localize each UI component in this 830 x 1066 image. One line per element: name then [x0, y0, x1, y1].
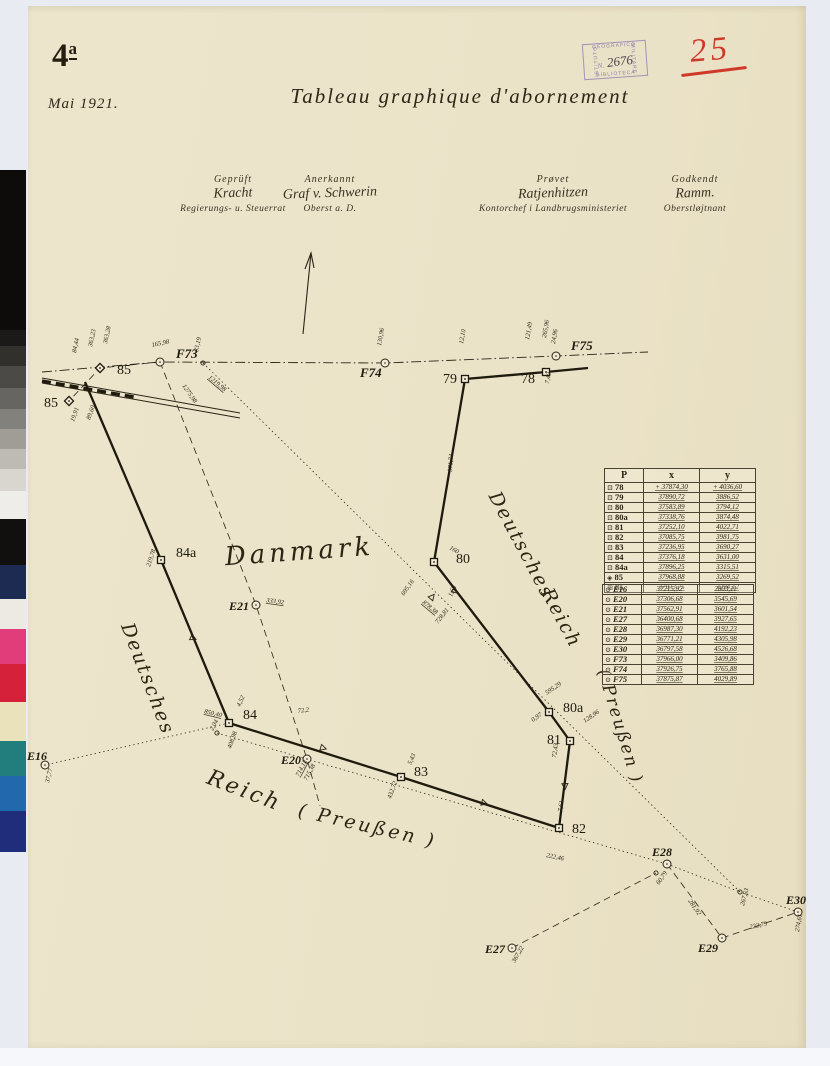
- measurement-label: 1219,98: [207, 374, 228, 393]
- x-value-cell: 37306,68: [642, 595, 698, 605]
- y-value-cell: + 4036,60: [700, 483, 756, 493]
- survey-point-dot: [44, 764, 46, 766]
- x-value-cell: 37085,75: [644, 533, 700, 543]
- marker-glyph: ⊙: [605, 626, 611, 634]
- measurement-label: 1275,98: [180, 383, 198, 405]
- survey-point-dot: [228, 722, 230, 724]
- table-row: ⊙ F7437926,753765,88: [603, 665, 754, 675]
- table-row: ⊡ 7937890,723886,52: [605, 493, 756, 503]
- measurement-label: 72,2: [297, 706, 310, 715]
- measurement-label: 850,40: [204, 708, 224, 719]
- marker-glyph: ⊡: [607, 484, 613, 492]
- scanned-survey-sheet: 4a Mai 1921. Tableau graphique d'abornem…: [0, 0, 830, 1066]
- measurement-label: 7,61: [557, 800, 566, 812]
- x-value-cell: 37968,88: [644, 573, 700, 583]
- y-value-cell: 3601,54: [698, 605, 754, 615]
- point-id-cell: ⊡ 80a: [605, 513, 644, 523]
- region-label: Reich: [202, 765, 285, 817]
- marker-glyph: ⊡: [607, 494, 613, 502]
- measurement-label: 19,91: [69, 407, 81, 423]
- marker-glyph: ⊙: [605, 596, 611, 604]
- measurement-label: 333,92: [265, 597, 285, 607]
- measurement-label: 222,79: [749, 920, 769, 931]
- measurement-label: 363,28: [102, 325, 113, 346]
- survey-point-dot: [569, 740, 571, 742]
- measurement-label: 12,10: [458, 328, 468, 344]
- point-id-cell: ⊙ F75: [603, 675, 642, 685]
- survey-point-dot: [433, 561, 435, 563]
- point-label-E16: E16: [26, 749, 47, 763]
- survey-line-dotted: [667, 864, 740, 892]
- marker-glyph: ⊙: [605, 656, 611, 664]
- y-value-cell: 3874,48: [700, 513, 756, 523]
- coordinate-table-reference: ⊙ E1637215,922803,11⊙ E2037306,683545,69…: [602, 584, 754, 685]
- survey-point-dot: [68, 400, 70, 402]
- survey-point-dot: [558, 827, 560, 829]
- x-value-cell: 37926,75: [642, 665, 698, 675]
- point-id-cell: ⊙ F73: [603, 655, 642, 665]
- railway-line: [42, 378, 240, 413]
- survey-point-dot: [721, 937, 723, 939]
- y-value-cell: 3690,27: [700, 543, 756, 553]
- marker-glyph: ⊡: [607, 504, 613, 512]
- point-id-cell: ⊙ E20: [603, 595, 642, 605]
- x-value-cell: 37583,89: [644, 503, 700, 513]
- point-label-85-lower: 85: [44, 396, 58, 411]
- x-value-cell: 37236,95: [644, 543, 700, 553]
- table-row: ⊡ 8137252,104022,71: [605, 523, 756, 533]
- x-value-cell: 36400,68: [642, 615, 698, 625]
- marker-glyph: ⊙: [605, 586, 611, 594]
- y-value-cell: 4192,23: [698, 625, 754, 635]
- survey-point-dot: [99, 367, 101, 369]
- measurement-label: 33,19: [193, 336, 203, 353]
- y-value-cell: 4305,98: [698, 635, 754, 645]
- point-label-82: 82: [572, 822, 586, 837]
- table-header-cell: P: [605, 469, 644, 483]
- y-value-cell: 3409,86: [698, 655, 754, 665]
- measurement-label: 84,44: [71, 337, 81, 353]
- x-value-cell: + 37874,30: [644, 483, 700, 493]
- marker-glyph: ⊡: [607, 564, 613, 572]
- survey-point-dot: [160, 559, 162, 561]
- y-value-cell: 3269,52: [700, 573, 756, 583]
- y-value-cell: 3886,52: [700, 493, 756, 503]
- survey-point-dot: [159, 361, 161, 363]
- table-row: ⊙ E2037306,683545,69: [603, 595, 754, 605]
- point-id-cell: ⊙ E30: [603, 645, 642, 655]
- x-value-cell: 36797,58: [642, 645, 698, 655]
- point-id-cell: ⊡ 84: [605, 553, 644, 563]
- measurement-label: 265,96: [541, 319, 551, 339]
- measurement-label: 4,52: [235, 694, 246, 708]
- x-value-cell: 37896,25: [644, 563, 700, 573]
- measurement-label: 274,61: [794, 914, 804, 933]
- survey-line-dotted: [45, 723, 229, 765]
- point-id-cell: ⊙ E28: [603, 625, 642, 635]
- x-value-cell: 37376,18: [644, 553, 700, 563]
- region-label: Deutsches: [483, 487, 558, 602]
- region-label: Danmark: [223, 532, 375, 572]
- marker-glyph: ⊡: [607, 534, 613, 542]
- table-row: ⊡ 8437376,183631,00: [605, 553, 756, 563]
- survey-point-dot: [384, 362, 386, 364]
- y-value-cell: 3631,00: [700, 553, 756, 563]
- region-label: ( Preußen ): [296, 800, 439, 853]
- table-row: ⊙ E2936771,214305,98: [603, 635, 754, 645]
- survey-point-dot: [464, 378, 466, 380]
- point-label-E21: E21: [228, 599, 249, 613]
- table-header-row: Pxy: [605, 469, 756, 483]
- point-id-cell: ⊡ 79: [605, 493, 644, 503]
- y-value-cell: 4029,89: [698, 675, 754, 685]
- point-id-cell: ⊙ E29: [603, 635, 642, 645]
- table-row: ⊙ E2137562,913601,54: [603, 605, 754, 615]
- measurement-label: 2,04: [209, 718, 221, 732]
- point-label-80: 80: [456, 552, 470, 567]
- region-label: Deutsches: [116, 619, 179, 738]
- table-row: ⊡ 8037583,893794,12: [605, 503, 756, 513]
- x-value-cell: 37966,00: [642, 655, 698, 665]
- survey-line-dashed: [512, 873, 656, 948]
- coordinate-table-boundary: Pxy⊡ 78+ 37874,30+ 4036,60⊡ 7937890,7238…: [604, 468, 756, 593]
- measurement-label: 60,79: [655, 870, 670, 887]
- point-label-79: 79: [443, 372, 457, 387]
- y-value-cell: 3315,51: [700, 563, 756, 573]
- point-id-cell: ⊙ F74: [603, 665, 642, 675]
- measurement-label: 0,97: [530, 711, 544, 724]
- measurement-label: 37,77: [44, 767, 55, 785]
- table-row: ⊡ 8237085,753981,75: [605, 533, 756, 543]
- point-id-cell: ⊡ 80: [605, 503, 644, 513]
- point-id-cell: ⊙ E16: [603, 585, 642, 595]
- marker-glyph: ⊙: [605, 616, 611, 624]
- measurement-label: 695,16: [400, 578, 416, 597]
- point-label-84a: 84a: [176, 546, 197, 561]
- point-id-cell: ⊙ E21: [603, 605, 642, 615]
- table-row: ⊙ E1637215,922803,11: [603, 585, 754, 595]
- x-value-cell: 36987,30: [642, 625, 698, 635]
- marker-glyph: ⊡: [607, 554, 613, 562]
- point-label-84: 84: [243, 708, 257, 723]
- survey-point-dot: [511, 947, 513, 949]
- point-id-cell: ⊡ 83: [605, 543, 644, 553]
- x-value-cell: 37875,87: [642, 675, 698, 685]
- point-label-E20: E20: [280, 753, 301, 767]
- boundary-line: [85, 368, 588, 828]
- x-value-cell: 37890,72: [644, 493, 700, 503]
- marker-glyph: ⊡: [607, 524, 613, 532]
- marker-glyph: ⊙: [605, 636, 611, 644]
- measurement-label: 432,72: [386, 780, 399, 800]
- measurement-label: 24,96: [550, 328, 560, 344]
- point-label-80a: 80a: [563, 701, 584, 716]
- survey-point-dot: [797, 911, 799, 913]
- measurement-label: 130,96: [376, 327, 386, 347]
- marker-glyph: ◈: [607, 574, 612, 582]
- survey-point-dot: [306, 758, 308, 760]
- measurement-label: 128,96: [582, 708, 601, 724]
- y-value-cell: 4022,71: [700, 523, 756, 533]
- point-id-cell: ⊙ E27: [603, 615, 642, 625]
- measurement-label: 371,74: [447, 453, 455, 473]
- point-label-F75: F75: [570, 338, 593, 353]
- table-row: ⊡ 8337236,953690,27: [605, 543, 756, 553]
- measurement-label: 165,98: [151, 338, 171, 349]
- survey-point-dot: [255, 604, 257, 606]
- measurement-label: 595,29: [544, 680, 563, 696]
- marker-glyph: ⊙: [605, 666, 611, 674]
- x-value-cell: 37215,92: [642, 585, 698, 595]
- survey-line-dashed: [160, 362, 320, 806]
- point-label-78: 78: [521, 372, 535, 387]
- direction-tick: [428, 592, 436, 600]
- point-label-F74: F74: [359, 365, 382, 380]
- survey-point-dot: [555, 355, 557, 357]
- table-row: ⊙ F7537875,874029,89: [603, 675, 754, 685]
- point-label-E30: E30: [785, 893, 806, 907]
- measurement-label: 7,40: [544, 371, 553, 384]
- survey-point-dot: [400, 776, 402, 778]
- measurement-label: 281,92: [686, 898, 702, 917]
- point-id-cell: ⊡ 78: [605, 483, 644, 493]
- y-value-cell: 2803,11: [698, 585, 754, 595]
- y-value-cell: 3927,65: [698, 615, 754, 625]
- marker-glyph: ⊙: [605, 646, 611, 654]
- y-value-cell: 3545,69: [698, 595, 754, 605]
- y-value-cell: 3765,88: [698, 665, 754, 675]
- point-label-85-upper: 85: [117, 363, 131, 378]
- table-row: ⊙ E2736400,683927,65: [603, 615, 754, 625]
- measurement-label: 363,23: [87, 328, 98, 349]
- table-row: ⊙ E2836987,304192,23: [603, 625, 754, 635]
- point-label-E28: E28: [651, 845, 672, 859]
- y-value-cell: 3794,12: [700, 503, 756, 513]
- marker-glyph: ⊙: [605, 676, 611, 684]
- survey-point-dot: [548, 711, 550, 713]
- measurement-label: 5,43: [406, 752, 417, 766]
- point-label-83: 83: [414, 765, 428, 780]
- table-row: ◈ 8537968,883269,52: [605, 573, 756, 583]
- point-label-E27: E27: [484, 942, 506, 956]
- marker-glyph: ⊡: [607, 544, 613, 552]
- point-id-cell: ⊡ 84a: [605, 563, 644, 573]
- measurement-label: 72,43: [551, 742, 560, 758]
- table-header-cell: x: [644, 469, 700, 483]
- x-value-cell: 37252,10: [644, 523, 700, 533]
- table-row: ⊙ F7337966,003409,86: [603, 655, 754, 665]
- point-label-E29: E29: [697, 941, 718, 955]
- measurement-label: 121,49: [524, 321, 534, 341]
- marker-glyph: ⊙: [605, 606, 611, 614]
- point-id-cell: ⊡ 82: [605, 533, 644, 543]
- table-header-cell: y: [700, 469, 756, 483]
- measurement-label: 219,78: [145, 548, 157, 568]
- x-value-cell: 36771,21: [642, 635, 698, 645]
- table-row: ⊡ 84a37896,253315,51: [605, 563, 756, 573]
- measurement-label: 222,46: [546, 852, 566, 863]
- marker-glyph: ⊡: [607, 514, 613, 522]
- x-value-cell: 37338,76: [644, 513, 700, 523]
- region-label: Reich: [536, 584, 586, 652]
- measurement-label: 408,98: [226, 730, 239, 750]
- table-row: ⊙ E3036797,584526,68: [603, 645, 754, 655]
- survey-point-dot: [666, 863, 668, 865]
- table-row: ⊡ 80a37338,763874,48: [605, 513, 756, 523]
- point-id-cell: ◈ 85: [605, 573, 644, 583]
- point-id-cell: ⊡ 81: [605, 523, 644, 533]
- table-row: ⊡ 78+ 37874,30+ 4036,60: [605, 483, 756, 493]
- x-value-cell: 37562,91: [642, 605, 698, 615]
- measurement-label: 878,38: [421, 599, 440, 616]
- y-value-cell: 4526,68: [698, 645, 754, 655]
- y-value-cell: 3981,75: [700, 533, 756, 543]
